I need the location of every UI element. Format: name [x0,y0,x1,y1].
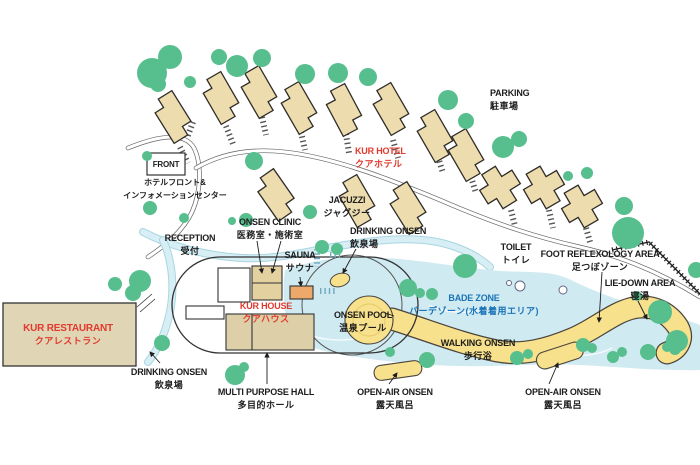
kur-restaurant-building [3,303,136,366]
facility-map: PARKING駐車場KUR HOTELクアホテルFRONTホテルフロント&インフ… [0,0,700,465]
retaining-wall [612,242,700,294]
map-canvas [0,0,700,465]
front-building [147,153,185,175]
open-air-pool-left [373,360,423,382]
onsen-pool [345,296,393,344]
hotel-cottages [150,66,609,235]
